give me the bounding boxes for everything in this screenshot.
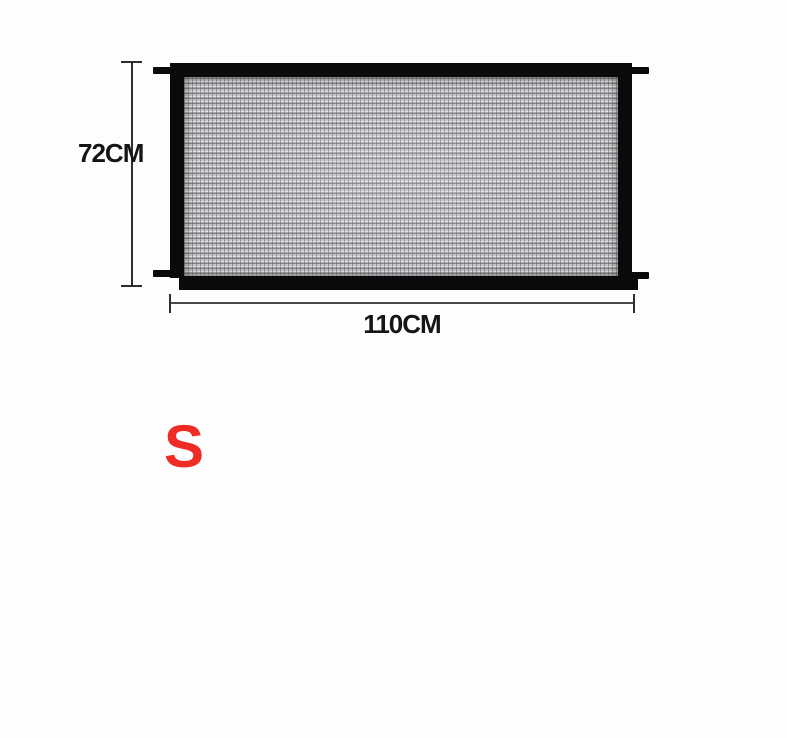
gate-strap-top-right xyxy=(631,67,649,74)
height-dimension-line xyxy=(131,62,133,286)
gate-strap-bottom-left xyxy=(153,270,171,277)
gate-frame-top xyxy=(170,63,632,77)
width-dimension-label: 110CM xyxy=(337,311,467,337)
gate-strap-top-left xyxy=(153,67,171,74)
gate-mesh-panel xyxy=(184,77,618,277)
gate-strap-bottom-right xyxy=(631,272,649,279)
height-dimension-label: 72CM xyxy=(78,140,130,166)
product-dimension-image: 72CM 110CM S xyxy=(0,0,787,738)
size-option-label: S xyxy=(160,421,208,472)
height-dimension-cap-bottom xyxy=(121,285,142,287)
width-dimension-line xyxy=(170,302,634,304)
width-dimension-cap-right xyxy=(633,294,635,313)
gate-frame-left xyxy=(170,63,184,278)
gate-frame-bottom xyxy=(179,276,638,290)
width-dimension-cap-left xyxy=(169,294,171,313)
height-dimension-cap-top xyxy=(121,61,142,63)
gate-frame-right xyxy=(618,63,632,282)
